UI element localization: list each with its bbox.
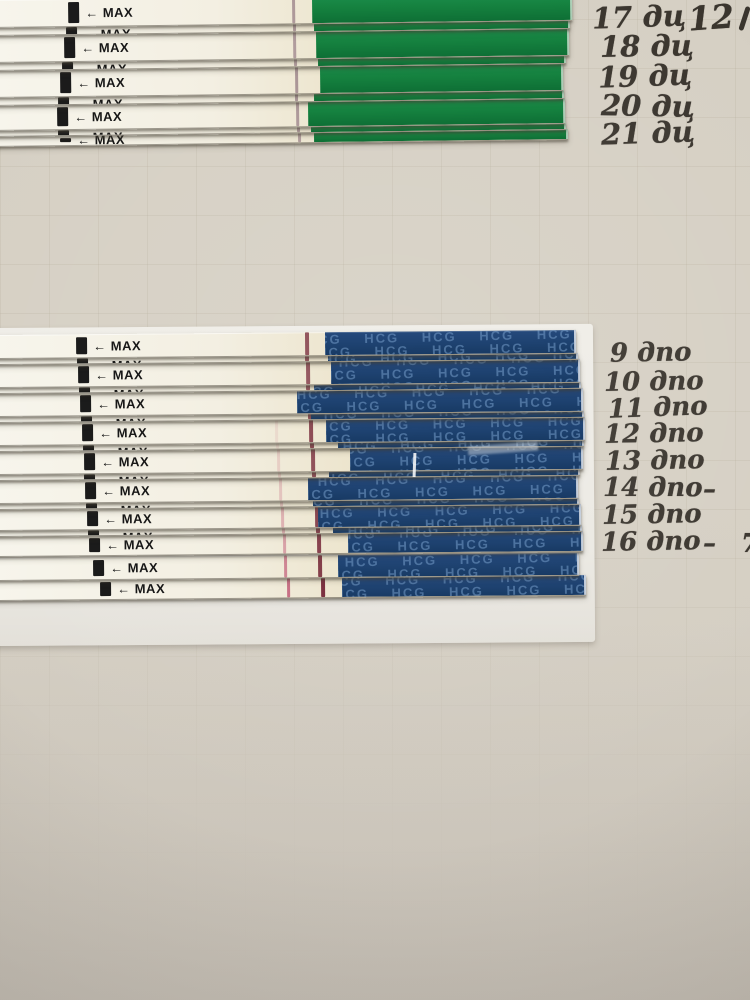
max-level-marker bbox=[100, 582, 111, 596]
control-line bbox=[296, 101, 299, 126]
max-print-label: ← MAX bbox=[95, 367, 143, 382]
max-level-marker bbox=[88, 530, 99, 537]
max-level-marker bbox=[79, 387, 90, 394]
blue-hcg-handle: HCG HCG HCG HCG HCG HCG HCG HCG HCG HCG … bbox=[297, 388, 583, 413]
max-level-marker bbox=[89, 538, 100, 552]
cycle-day-label: 21 дц bbox=[600, 114, 695, 151]
max-print-label: ← MAX bbox=[99, 425, 147, 440]
max-print-label: ← MAX bbox=[101, 454, 149, 469]
max-level-marker bbox=[84, 474, 95, 481]
max-level-marker bbox=[57, 107, 68, 126]
blue-hcg-handle: HCG HCG HCG HCG HCG HCG HCG HCG HCG HCG … bbox=[342, 575, 586, 597]
test-line bbox=[284, 555, 287, 577]
green-handle bbox=[316, 28, 569, 58]
max-level-marker bbox=[76, 337, 87, 354]
blue-hcg-handle: HCG HCG HCG HCG HCG HCG HCG HCG HCG HCG … bbox=[338, 553, 579, 577]
max-level-marker bbox=[60, 138, 71, 142]
max-level-marker bbox=[68, 2, 79, 23]
blue-hcg-handle: HCG HCG HCG HCG HCG HCG HCG HCG HCG HCG … bbox=[318, 504, 581, 527]
hcg-pattern-text: HCG HCG HCG HCG HCG HCG HCG HCG HCG HCG … bbox=[342, 575, 586, 597]
cut-off-pen-stroke bbox=[738, 6, 750, 31]
max-level-marker bbox=[80, 395, 91, 412]
max-level-marker bbox=[62, 62, 73, 71]
control-line bbox=[295, 93, 298, 101]
control-line bbox=[293, 23, 296, 31]
hcg-pattern-text: HCG HCG HCG HCG HCG HCG HCG HCG HCG HCG … bbox=[318, 504, 581, 527]
test-line bbox=[277, 449, 280, 472]
green-handle bbox=[320, 63, 563, 93]
max-level-marker bbox=[60, 72, 71, 93]
dpo-day-label: 16 дпо bbox=[601, 526, 701, 558]
hcg-pattern-text: HCG HCG HCG HCG HCG HCG HCG HCG HCG HCG … bbox=[297, 388, 583, 413]
max-print-label: ← MAX bbox=[85, 4, 133, 20]
max-print-label: ← MAX bbox=[110, 560, 158, 575]
hcg-test-strip: ← MAXHCG HCG HCG HCG HCG HCG HCG HCG HCG… bbox=[0, 330, 576, 359]
control-line bbox=[292, 0, 295, 23]
max-print-label: ← MAX bbox=[77, 74, 125, 90]
blue-hcg-handle: HCG HCG HCG HCG HCG HCG HCG HCG HCG HCG … bbox=[348, 531, 583, 553]
test-line bbox=[279, 477, 282, 500]
max-level-marker bbox=[83, 445, 94, 452]
blue-hcg-handle: HCG HCG HCG HCG HCG HCG HCG HCG HCG HCG … bbox=[308, 475, 578, 500]
max-level-marker bbox=[77, 358, 88, 365]
test-line bbox=[281, 506, 284, 527]
max-level-marker bbox=[78, 366, 89, 383]
max-print-label: ← MAX bbox=[117, 581, 165, 596]
hcg-pattern-text: HCG HCG HCG HCG HCG HCG HCG HCG HCG HCG … bbox=[338, 553, 579, 577]
test-line bbox=[275, 420, 278, 443]
blue-hcg-handle: HCG HCG HCG HCG HCG HCG HCG HCG HCG HCG … bbox=[331, 359, 580, 384]
control-line bbox=[298, 132, 301, 142]
max-print-label: ← MAX bbox=[106, 537, 154, 552]
max-print-label: ← MAX bbox=[93, 338, 141, 353]
control-line bbox=[311, 448, 315, 471]
blue-hcg-handle: HCG HCG HCG HCG HCG HCG HCG HCG HCG HCG … bbox=[325, 330, 576, 355]
hcg-pattern-text: HCG HCG HCG HCG HCG HCG HCG HCG HCG HCG … bbox=[348, 531, 583, 553]
max-print-label: ← MAX bbox=[74, 108, 122, 124]
corner-label-cut-off: 12 bbox=[687, 0, 736, 39]
blue-hcg-handle: HCG HCG HCG HCG HCG HCG HCG HCG HCG HCG … bbox=[350, 446, 583, 471]
test-line bbox=[287, 577, 290, 597]
control-line bbox=[306, 361, 310, 384]
max-print-label: ← MAX bbox=[81, 39, 129, 55]
hcg-pattern-text: HCG HCG HCG HCG HCG HCG HCG HCG HCG HCG … bbox=[331, 359, 580, 384]
max-level-marker bbox=[81, 416, 92, 423]
max-print-label: ← MAX bbox=[102, 483, 150, 498]
hcg-pattern-text: HCG HCG HCG HCG HCG HCG HCG HCG HCG HCG … bbox=[308, 475, 578, 500]
control-line bbox=[295, 66, 298, 93]
dpo-label-annotation: – bbox=[703, 475, 724, 505]
max-level-marker bbox=[58, 130, 69, 137]
control-line bbox=[318, 555, 322, 577]
max-level-marker bbox=[64, 37, 75, 58]
max-level-marker bbox=[86, 503, 97, 510]
dpo-label-annotation: – 7 bbox=[703, 529, 750, 559]
green-handle bbox=[312, 0, 572, 23]
control-line bbox=[321, 577, 325, 597]
dpo-day-label: 9 дпо bbox=[610, 337, 692, 368]
control-line bbox=[317, 533, 321, 553]
hcg-pattern-text: HCG HCG HCG HCG HCG HCG HCG HCG HCG HCG … bbox=[326, 417, 585, 442]
control-line bbox=[293, 31, 296, 58]
max-level-marker bbox=[85, 482, 96, 499]
control-line bbox=[305, 332, 309, 355]
control-line bbox=[294, 58, 297, 66]
max-level-marker bbox=[84, 453, 95, 470]
green-handle bbox=[308, 98, 565, 126]
max-level-marker bbox=[58, 97, 69, 106]
max-level-marker bbox=[66, 27, 77, 36]
hcg-pattern-text: HCG HCG HCG HCG HCG HCG HCG HCG HCG HCG … bbox=[325, 330, 576, 355]
max-level-marker bbox=[82, 424, 93, 441]
max-level-marker bbox=[93, 560, 104, 576]
test-line bbox=[283, 533, 286, 553]
max-print-label: ← MAX bbox=[104, 511, 152, 526]
max-level-marker bbox=[87, 511, 98, 526]
blue-hcg-handle: HCG HCG HCG HCG HCG HCG HCG HCG HCG HCG … bbox=[326, 417, 585, 442]
control-line bbox=[309, 419, 313, 442]
photo-of-test-strips: { "print": { "arrow": "←", "max_label": … bbox=[0, 0, 750, 1000]
hcg-pattern-text: HCG HCG HCG HCG HCG HCG HCG HCG HCG HCG … bbox=[350, 446, 583, 471]
max-print-label: ← MAX bbox=[97, 396, 145, 411]
